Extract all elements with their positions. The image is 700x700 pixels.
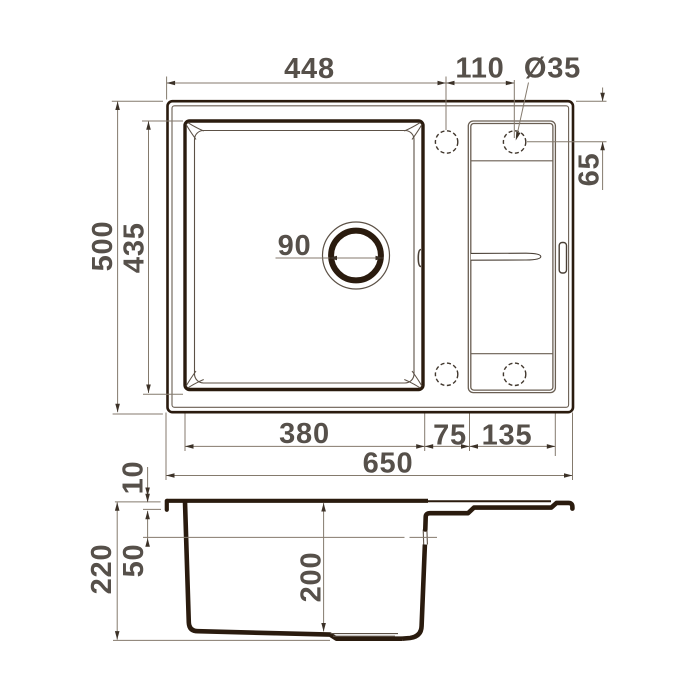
svg-text:200: 200 bbox=[296, 552, 328, 603]
svg-text:448: 448 bbox=[284, 53, 335, 85]
svg-text:500: 500 bbox=[87, 221, 119, 272]
svg-text:380: 380 bbox=[279, 418, 330, 450]
svg-text:650: 650 bbox=[363, 448, 414, 480]
svg-text:220: 220 bbox=[86, 544, 118, 595]
svg-text:90: 90 bbox=[278, 230, 312, 262]
svg-text:110: 110 bbox=[455, 53, 504, 85]
svg-text:Ø35: Ø35 bbox=[524, 53, 581, 85]
svg-text:10: 10 bbox=[118, 461, 150, 495]
svg-text:50: 50 bbox=[118, 544, 150, 578]
svg-text:135: 135 bbox=[482, 420, 533, 452]
svg-text:435: 435 bbox=[119, 222, 151, 273]
svg-text:75: 75 bbox=[433, 420, 467, 452]
svg-text:65: 65 bbox=[574, 153, 606, 187]
